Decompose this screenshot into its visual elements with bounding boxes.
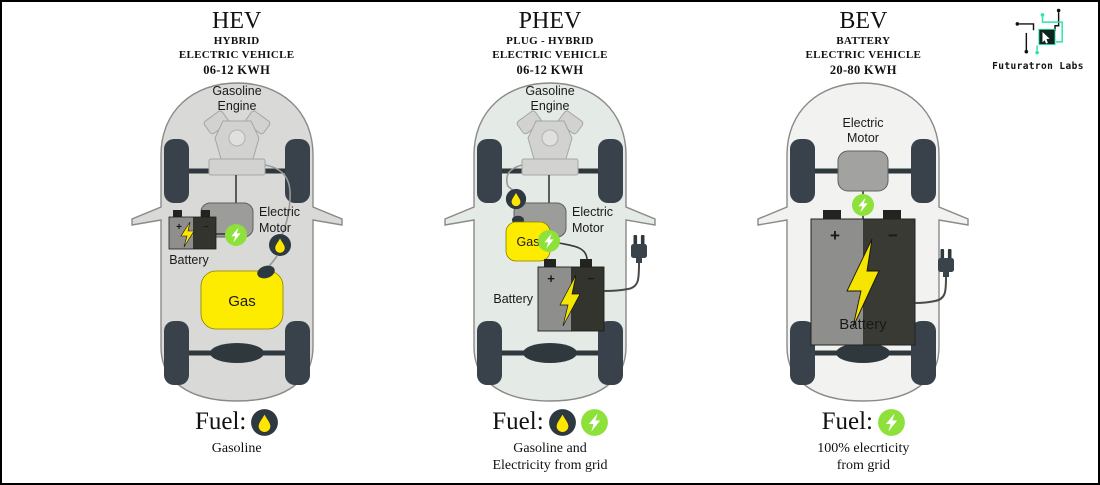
svg-text:Motor: Motor xyxy=(847,131,879,145)
fuel-heading: Fuel: xyxy=(822,408,873,436)
motor-label: Electric xyxy=(259,205,300,219)
electricity-fuel-icon xyxy=(878,409,905,436)
charging-plug-icon xyxy=(938,249,954,277)
electricity-icon xyxy=(538,230,560,252)
fuel-drop-icon xyxy=(269,234,291,256)
phev-car-diagram: Gasoline Engine Electric Motor Gas xyxy=(430,79,670,409)
phev-capacity: 06-12 KWH xyxy=(393,62,706,79)
engine-label: Gasoline xyxy=(212,84,261,98)
electricity-fuel-icon xyxy=(581,409,608,436)
gas-label: Gas xyxy=(228,293,256,310)
svg-text:Motor: Motor xyxy=(259,221,291,235)
charging-plug-icon xyxy=(631,235,647,263)
svg-text:+: + xyxy=(547,271,555,286)
phev-title: PHEV xyxy=(393,8,706,35)
bev-fuel-row: Fuel: xyxy=(707,407,1020,437)
hev-car-diagram: Gasoline Engine Electric Motor + xyxy=(117,79,357,409)
battery-label: Battery xyxy=(840,316,888,333)
svg-text:Motor: Motor xyxy=(572,221,604,235)
hev-capacity: 06-12 KWH xyxy=(80,62,393,79)
bev-title: BEV xyxy=(707,8,1020,35)
fuel-heading: Fuel: xyxy=(195,408,246,436)
svg-text:Engine: Engine xyxy=(217,99,256,113)
svg-text:−: − xyxy=(203,222,209,233)
bev-subtitle-2: ELECTRIC VEHICLE xyxy=(707,49,1020,63)
hev-caption: Gasoline xyxy=(80,440,393,457)
electricity-icon xyxy=(852,194,874,216)
fuel-heading: Fuel: xyxy=(492,408,543,436)
bev-capacity: 20-80 KWH xyxy=(707,62,1020,79)
phev-subtitle-1: PLUG - HYBRID xyxy=(393,35,706,49)
hev-subtitle-2: ELECTRIC VEHICLE xyxy=(80,49,393,63)
svg-text:+: + xyxy=(830,226,840,245)
svg-text:−: − xyxy=(587,271,595,286)
panel-hev: HEV HYBRID ELECTRIC VEHICLE 06-12 KWH Ga… xyxy=(80,2,393,483)
electricity-icon xyxy=(225,224,247,246)
gasoline-fuel-icon xyxy=(549,409,576,436)
bev-caption: 100% elecrticity from grid xyxy=(707,440,1020,474)
panel-bev: BEV BATTERY ELECTRIC VEHICLE 20-80 KWH E… xyxy=(707,2,1020,483)
phev-fuel-row: Fuel: xyxy=(393,407,706,437)
bev-car-diagram: Electric Motor + − Battery xyxy=(743,79,983,409)
phev-caption: Gasoline and Electricity from grid xyxy=(393,440,706,474)
svg-text:+: + xyxy=(176,222,182,233)
fuel-drop-icon xyxy=(506,189,526,209)
svg-text:−: − xyxy=(888,226,898,245)
hev-fuel-row: Fuel: xyxy=(80,407,393,437)
engine-label: Gasoline xyxy=(525,84,574,98)
brand-logo: Futuratron Labs xyxy=(988,6,1088,72)
battery-label: Battery xyxy=(493,292,533,306)
electric-motor-box xyxy=(838,151,888,191)
infographic-frame: Futuratron Labs HEV HYBRID ELECTRIC VEHI… xyxy=(0,0,1100,485)
gasoline-fuel-icon xyxy=(251,409,278,436)
panel-phev: PHEV PLUG - HYBRID ELECTRIC VEHICLE 06-1… xyxy=(393,2,706,483)
hev-subtitle-1: HYBRID xyxy=(80,35,393,49)
bev-subtitle-1: BATTERY xyxy=(707,35,1020,49)
motor-label: Electric xyxy=(572,205,613,219)
gas-label: Gas xyxy=(517,235,540,249)
phev-subtitle-2: ELECTRIC VEHICLE xyxy=(393,49,706,63)
battery-icon: + − Battery xyxy=(811,210,915,345)
hev-title: HEV xyxy=(80,8,393,35)
brand-logo-icon xyxy=(1005,6,1071,58)
motor-label: Electric xyxy=(843,116,884,130)
battery-icon: + − xyxy=(538,259,604,331)
brand-name: Futuratron Labs xyxy=(988,61,1088,72)
svg-text:Engine: Engine xyxy=(531,99,570,113)
battery-label: Battery xyxy=(169,253,209,267)
